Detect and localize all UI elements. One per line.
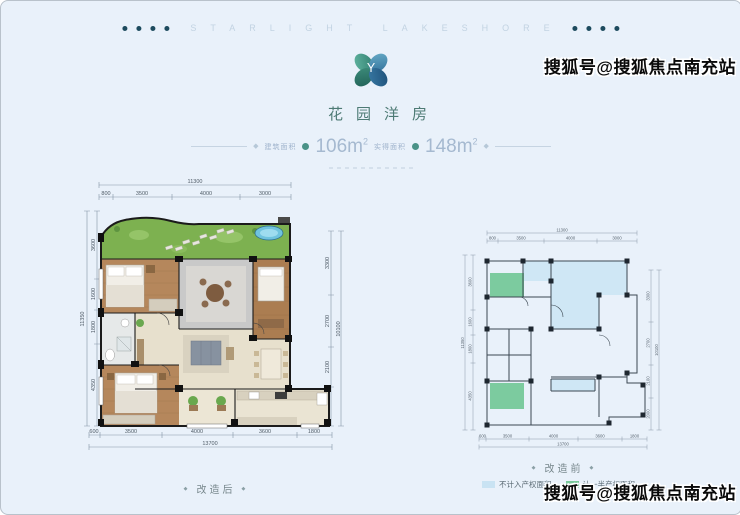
diamond-icon: ◆ bbox=[484, 143, 489, 150]
svg-text:2100: 2100 bbox=[646, 376, 651, 386]
dot-icon bbox=[573, 26, 578, 31]
svg-text:10100: 10100 bbox=[336, 321, 342, 336]
central-patio bbox=[179, 259, 253, 329]
building-area-label: 建筑面积 bbox=[264, 142, 296, 152]
caption-before: ◆ 改造前 ◆ bbox=[459, 460, 669, 475]
svg-text:3600: 3600 bbox=[91, 239, 97, 251]
toilet bbox=[106, 349, 115, 361]
watermark-bottom: 搜狐号@搜狐焦点南充站 bbox=[544, 479, 736, 504]
svg-text:11350: 11350 bbox=[460, 337, 465, 349]
svg-text:3500: 3500 bbox=[503, 434, 513, 439]
svg-text:2000: 2000 bbox=[646, 409, 651, 419]
svg-text:3600: 3600 bbox=[595, 434, 605, 439]
svg-text:11300: 11300 bbox=[556, 228, 568, 233]
svg-text:10100: 10100 bbox=[654, 344, 659, 356]
dot-icon bbox=[122, 26, 127, 31]
divider-line bbox=[191, 146, 247, 147]
svg-text:1600: 1600 bbox=[91, 288, 97, 300]
svg-text:600: 600 bbox=[89, 429, 98, 435]
caption-before-text: 改造前 bbox=[545, 460, 584, 475]
svg-text:13700: 13700 bbox=[202, 441, 217, 447]
diamond-icon: ◆ bbox=[242, 486, 249, 492]
svg-text:1800: 1800 bbox=[308, 429, 320, 435]
svg-text:3300: 3300 bbox=[646, 291, 651, 301]
caption-after: ◆ 改造后 ◆ bbox=[81, 481, 351, 496]
svg-text:4350: 4350 bbox=[91, 379, 97, 391]
floorplan-after: 11300 800 3500 4000 3000 11350 3600 1600… bbox=[79, 173, 351, 480]
dot-icon bbox=[136, 26, 141, 31]
svg-text:3000: 3000 bbox=[259, 191, 271, 197]
floorplan-before: 11300 800 3500 4000 3000 11350 3600 1600… bbox=[459, 225, 671, 470]
svg-text:2700: 2700 bbox=[325, 315, 331, 327]
svg-text:600: 600 bbox=[479, 434, 487, 439]
diamond-icon: ◆ bbox=[532, 465, 539, 471]
svg-text:1800: 1800 bbox=[630, 434, 640, 439]
usable-area-value: 148m2 bbox=[425, 137, 478, 156]
wardrobe bbox=[149, 299, 177, 311]
dot-icon bbox=[164, 26, 169, 31]
area-dot-icon bbox=[302, 143, 309, 150]
sofa bbox=[191, 341, 221, 365]
usable-area-label: 实得面积 bbox=[374, 142, 406, 152]
svg-text:3300: 3300 bbox=[325, 257, 331, 269]
poster-page: STARLIGHT LAKESHORE bbox=[0, 0, 740, 515]
svg-text:4000: 4000 bbox=[200, 191, 212, 197]
svg-text:800: 800 bbox=[489, 236, 497, 241]
svg-text:4350: 4350 bbox=[468, 391, 473, 401]
svg-text:3500: 3500 bbox=[125, 429, 137, 435]
fridge bbox=[317, 393, 327, 405]
caption-after-text: 改造后 bbox=[197, 481, 236, 496]
coffee-table bbox=[226, 347, 234, 360]
svg-text:3600: 3600 bbox=[259, 429, 271, 435]
kitchen bbox=[235, 389, 329, 426]
diamond-icon: ◆ bbox=[590, 465, 597, 471]
half-property-area bbox=[490, 273, 524, 297]
faint-dash-decoration bbox=[329, 167, 413, 169]
svg-text:3500: 3500 bbox=[136, 191, 148, 197]
svg-text:1600: 1600 bbox=[468, 317, 473, 327]
svg-text:2700: 2700 bbox=[646, 338, 651, 348]
dining-table bbox=[261, 349, 281, 379]
divider-line bbox=[495, 146, 551, 147]
wardrobe bbox=[103, 415, 155, 424]
dot-icon bbox=[587, 26, 592, 31]
svg-text:13700: 13700 bbox=[557, 442, 569, 447]
half-property-area bbox=[490, 383, 524, 409]
bathroom bbox=[101, 313, 135, 365]
svg-text:4000: 4000 bbox=[191, 429, 203, 435]
svg-text:3500: 3500 bbox=[516, 236, 526, 241]
page-title: 花园洋房 bbox=[1, 103, 740, 124]
balcony bbox=[179, 389, 235, 426]
bedroom-right bbox=[253, 259, 290, 341]
bedroom-master bbox=[101, 365, 179, 426]
logo-letter: Y bbox=[367, 61, 376, 75]
building-area-value: 106m2 bbox=[315, 137, 368, 156]
svg-text:3600: 3600 bbox=[468, 277, 473, 287]
diamond-icon: ◆ bbox=[184, 486, 191, 492]
svg-text:2100: 2100 bbox=[325, 361, 331, 373]
svg-text:800: 800 bbox=[101, 191, 110, 197]
area-dot-icon bbox=[412, 143, 419, 150]
plant bbox=[136, 319, 144, 327]
non-property-area bbox=[523, 261, 627, 329]
dot-icon bbox=[150, 26, 155, 31]
dot-icon bbox=[615, 26, 620, 31]
stove bbox=[275, 392, 287, 399]
svg-text:4000: 4000 bbox=[549, 434, 559, 439]
legend-swatch-blue bbox=[482, 481, 495, 488]
non-property-area bbox=[551, 379, 595, 391]
watermark-top: 搜狐号@搜狐焦点南充站 bbox=[544, 53, 736, 78]
svg-text:3000: 3000 bbox=[612, 236, 622, 241]
legend-item: 不计入产权面积 bbox=[482, 479, 552, 490]
bedroom-topleft bbox=[101, 259, 179, 313]
dot-icon bbox=[601, 26, 606, 31]
kitchen-sink bbox=[249, 392, 259, 399]
svg-text:11300: 11300 bbox=[188, 179, 203, 185]
flower-logo-icon: Y bbox=[348, 47, 394, 98]
svg-text:4000: 4000 bbox=[566, 236, 576, 241]
desk bbox=[258, 319, 284, 328]
header-decoration: STARLIGHT LAKESHORE bbox=[122, 23, 619, 33]
svg-text:1800: 1800 bbox=[468, 344, 473, 354]
sink bbox=[121, 319, 129, 327]
area-spec-line: ◆ 建筑面积 106m2 实得面积 148m2 ◆ bbox=[1, 137, 740, 156]
svg-text:11350: 11350 bbox=[80, 312, 86, 327]
svg-text:1800: 1800 bbox=[91, 321, 97, 333]
brand-letters: STARLIGHT LAKESHORE bbox=[178, 23, 563, 33]
diamond-icon: ◆ bbox=[253, 143, 258, 150]
